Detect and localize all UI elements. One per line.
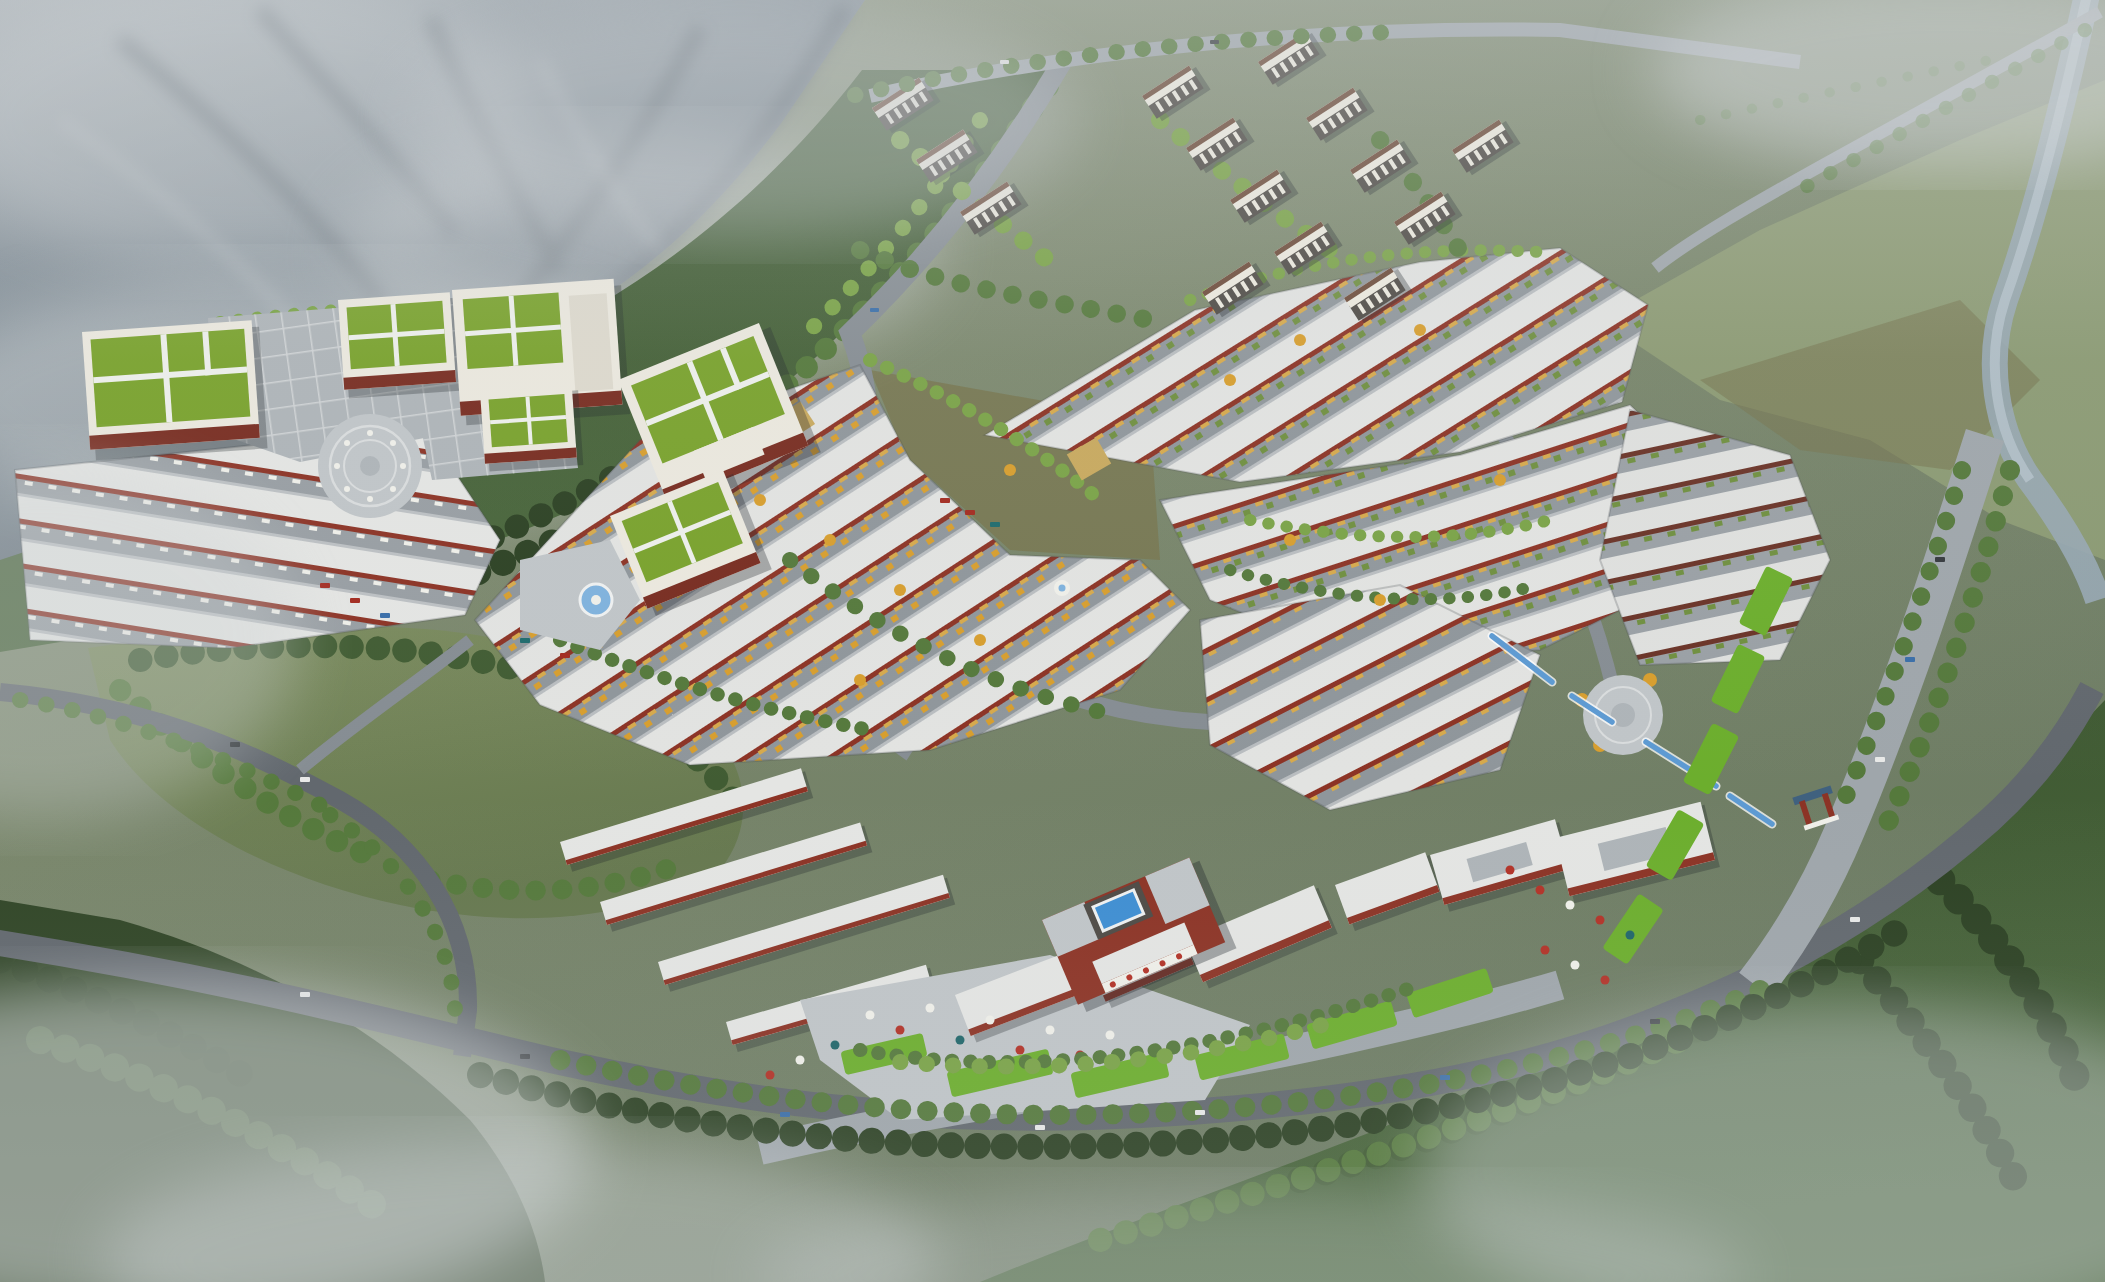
masterplan-rendering: Bird's-eye masterplan rendering of a Tib…: [0, 0, 2105, 1282]
aerial-scene: Bird's-eye masterplan rendering of a Tib…: [0, 0, 2105, 1282]
fog-banks: [0, 0, 2105, 1282]
